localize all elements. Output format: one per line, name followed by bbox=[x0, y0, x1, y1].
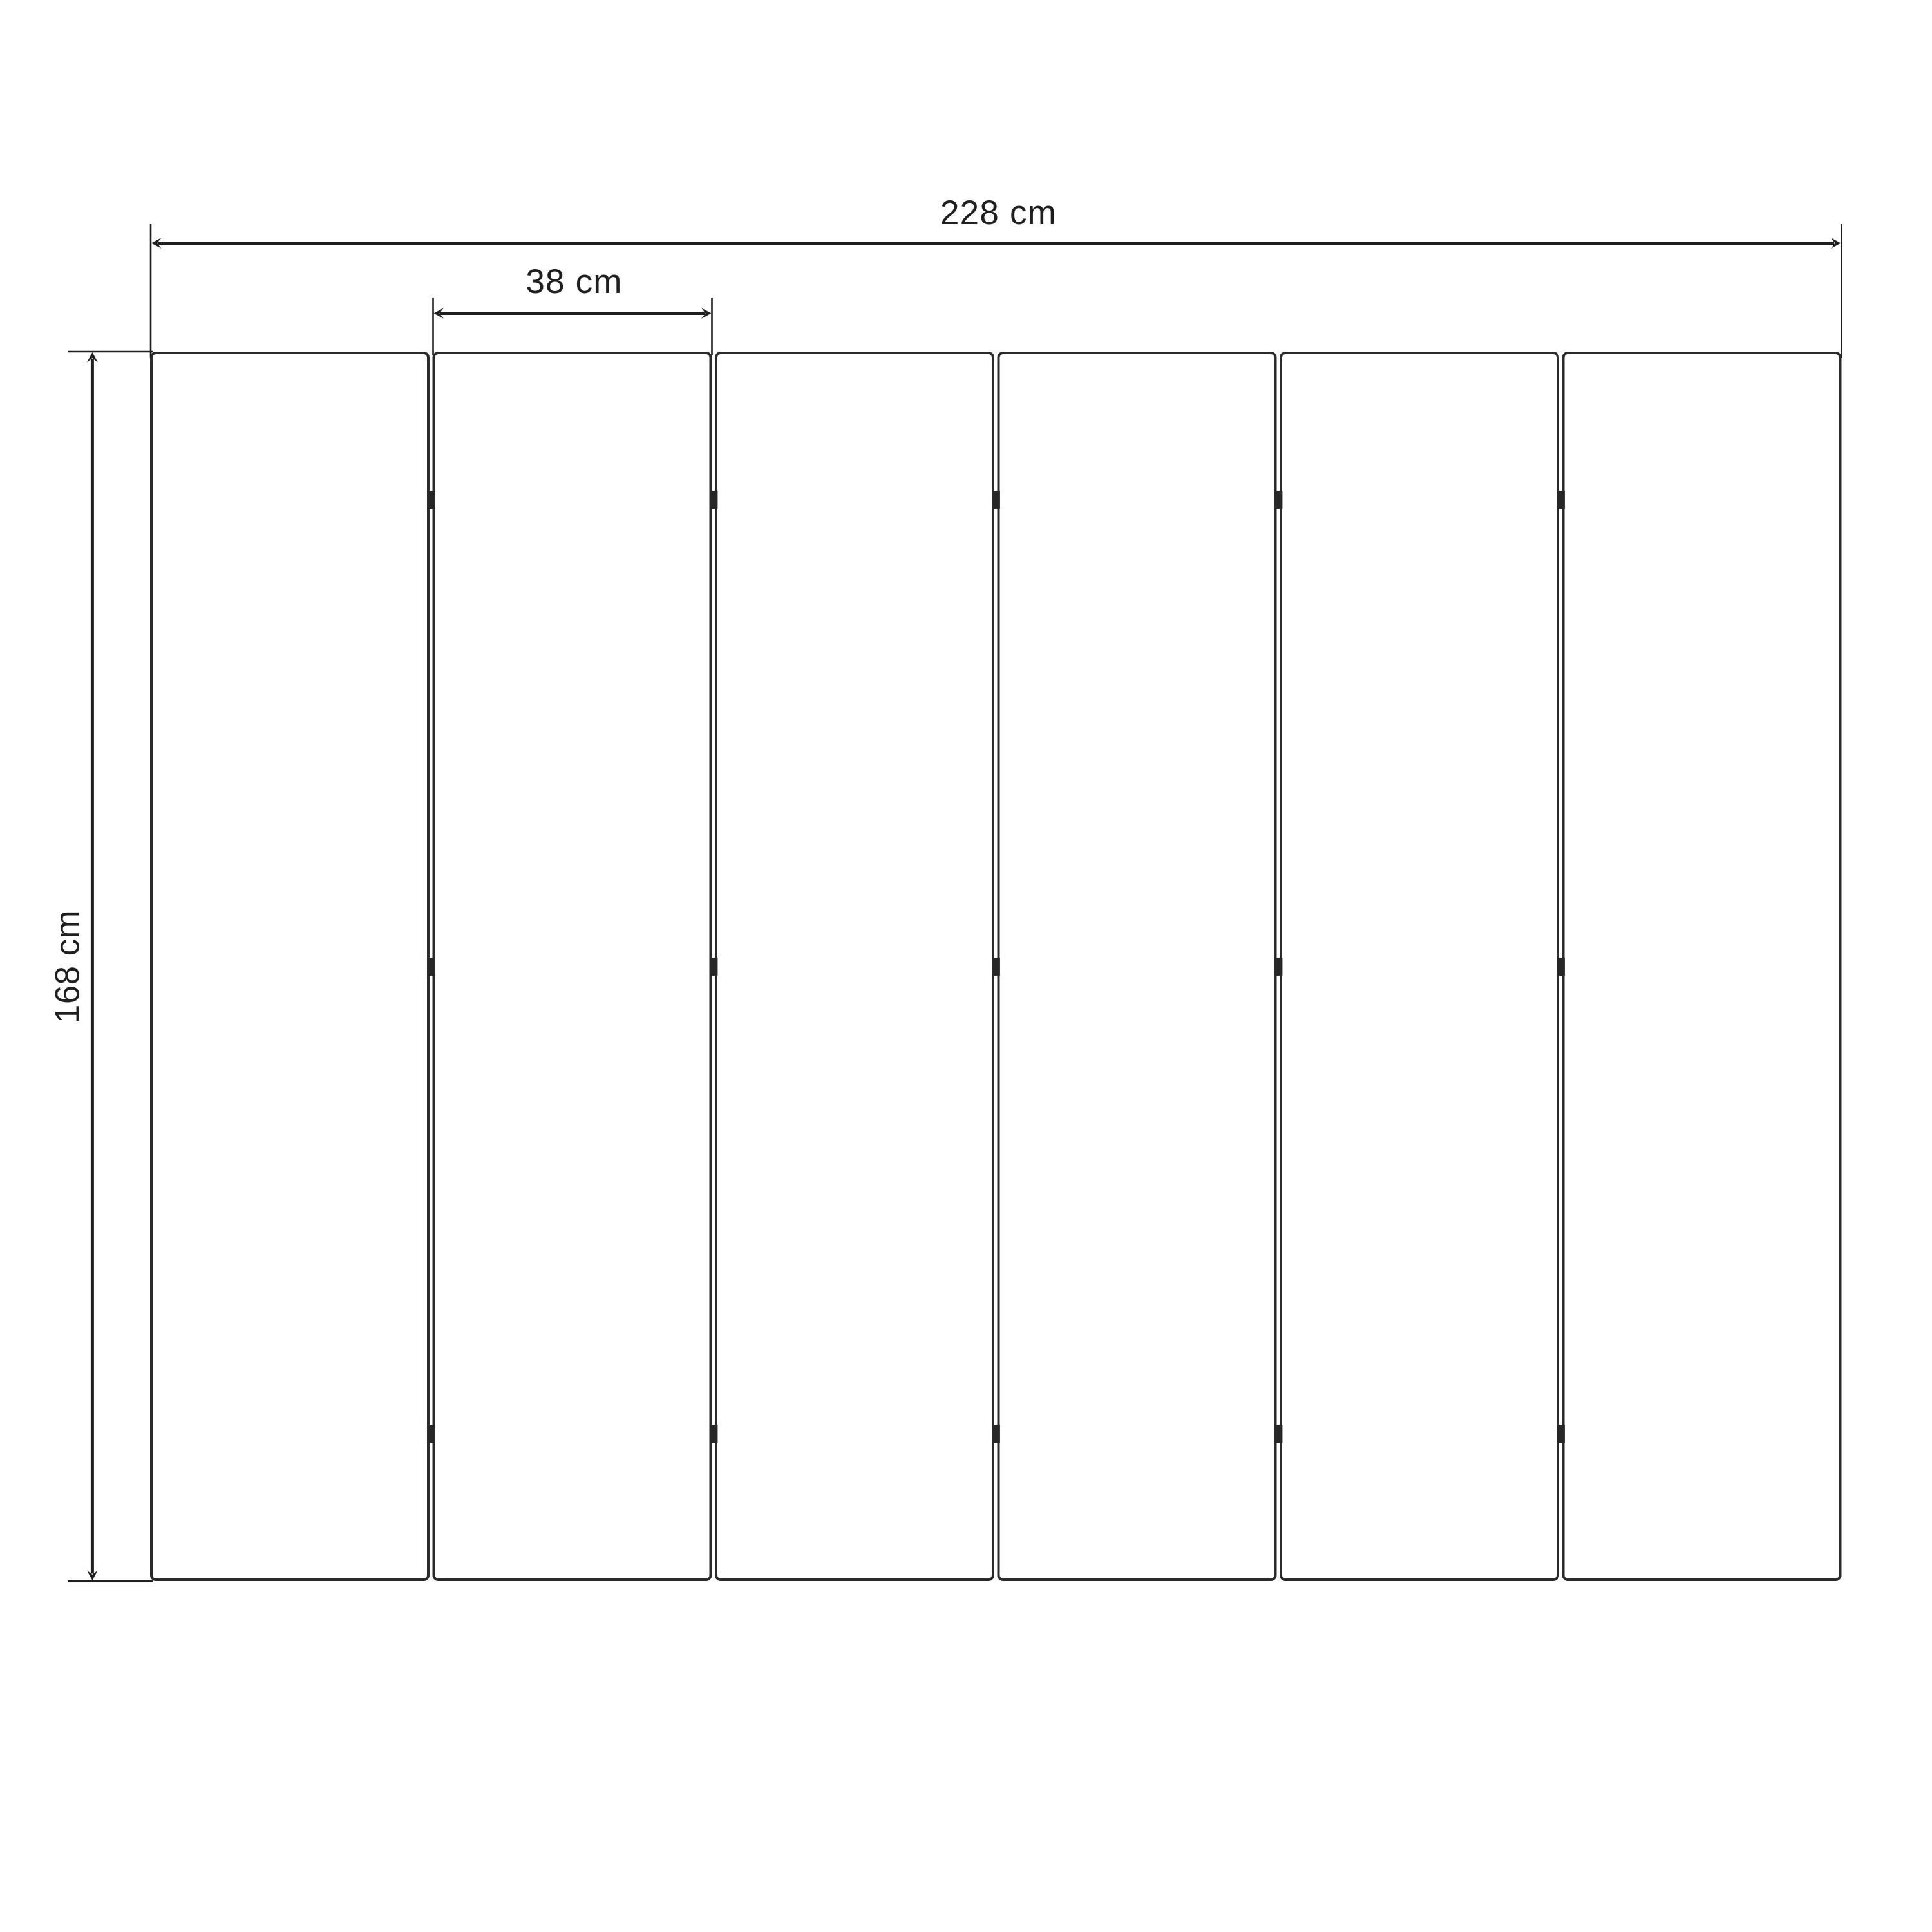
svg-text:38 cm: 38 cm bbox=[526, 263, 622, 301]
svg-text:168 cm: 168 cm bbox=[49, 910, 87, 1023]
svg-text:228 cm: 228 cm bbox=[940, 194, 1057, 232]
